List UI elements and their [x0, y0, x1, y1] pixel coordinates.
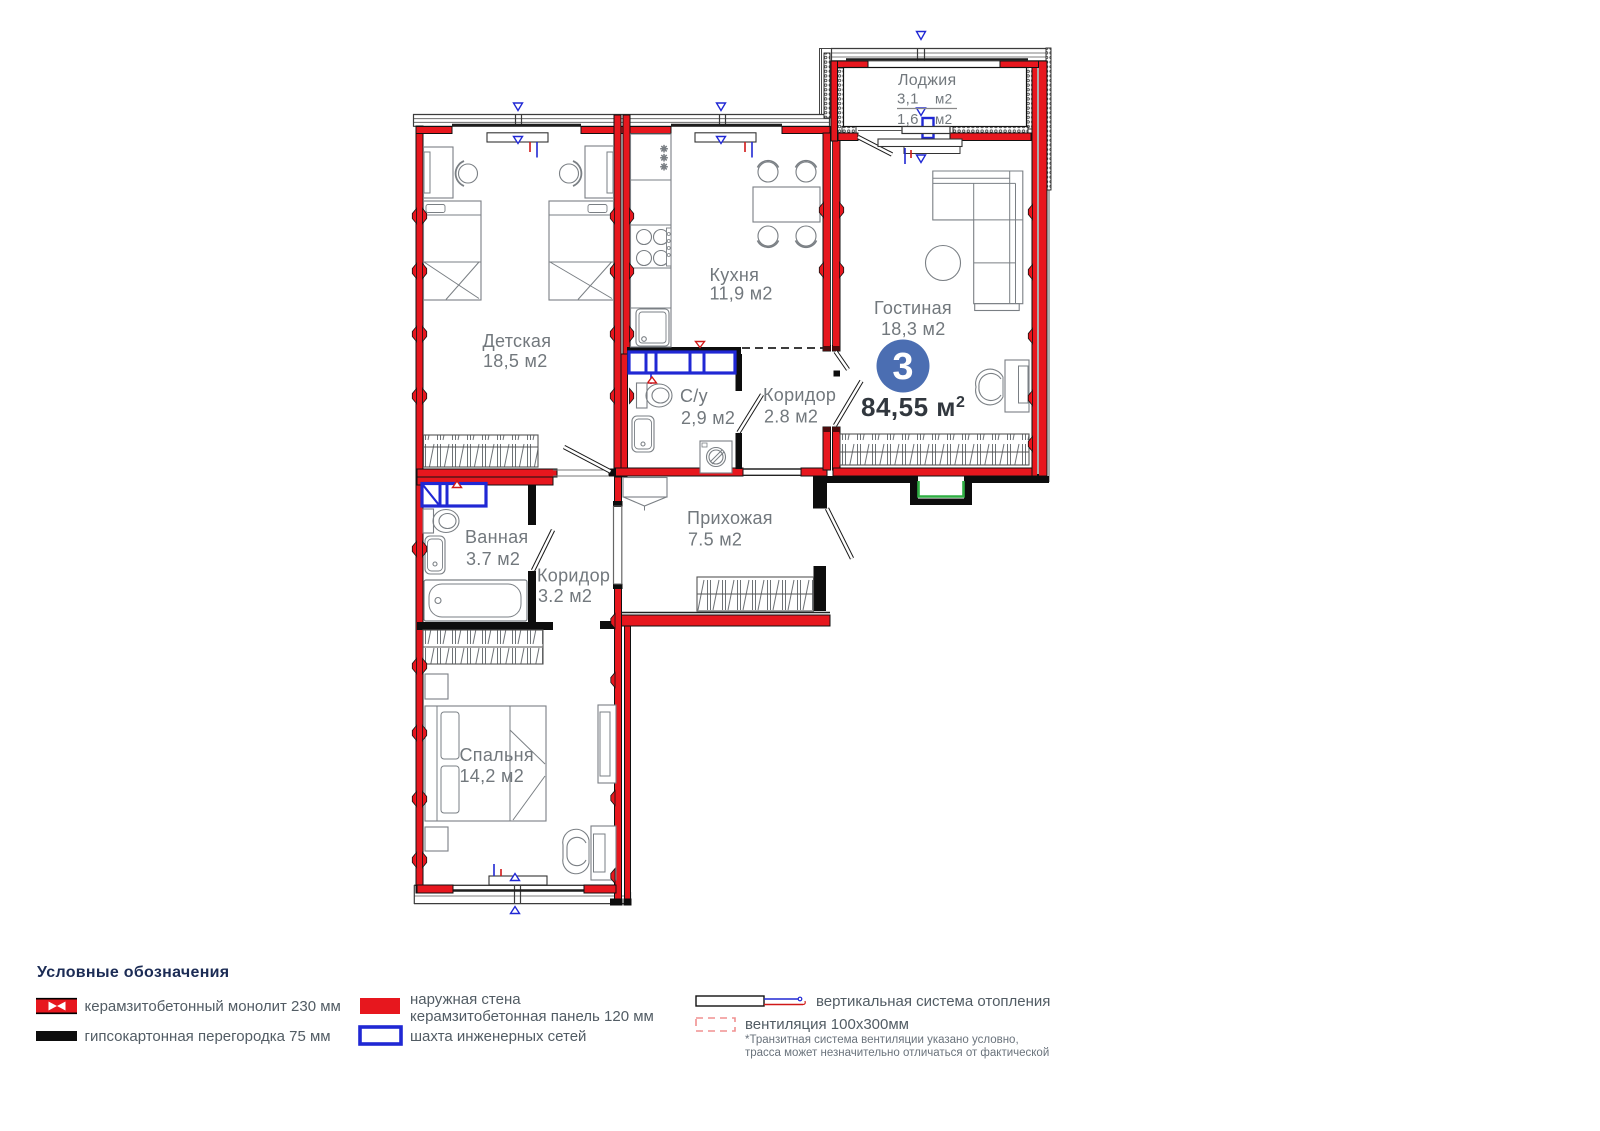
svg-text:11,9 м2: 11,9 м2	[710, 284, 773, 304]
svg-text:18,5 м2: 18,5 м2	[483, 351, 548, 371]
svg-text:Лоджия: Лоджия	[898, 72, 957, 89]
svg-text:84,55 м2: 84,55 м2	[861, 392, 965, 422]
svg-text:трасса может незначительно отл: трасса может незначительно отличаться от…	[745, 1047, 1049, 1059]
svg-text:вентиляция 100х300мм: вентиляция 100х300мм	[745, 1016, 909, 1033]
svg-text:гипсокартонная перегородка 75: гипсокартонная перегородка 75 мм	[85, 1028, 331, 1045]
svg-text:3.2 м2: 3.2 м2	[538, 586, 592, 606]
svg-text:С/у: С/у	[680, 386, 708, 406]
svg-text:Спальня: Спальня	[460, 745, 534, 765]
svg-text:3: 3	[892, 346, 913, 388]
svg-text:Кухня: Кухня	[710, 265, 760, 285]
svg-text:3.7 м2: 3.7 м2	[466, 549, 520, 569]
svg-text:✳: ✳	[660, 162, 668, 172]
svg-text:Коридор: Коридор	[763, 385, 836, 405]
svg-text:Прихожая: Прихожая	[687, 508, 773, 528]
svg-text:Условные обозначения: Условные обозначения	[37, 964, 229, 981]
svg-text:керамзитобетонная панель 120 м: керамзитобетонная панель 120 мм	[410, 1008, 654, 1025]
svg-text:м2: м2	[935, 112, 952, 127]
svg-text:шахта инженерных сетей: шахта инженерных сетей	[410, 1028, 586, 1045]
svg-text:18,3 м2: 18,3 м2	[881, 319, 946, 339]
svg-text:7.5 м2: 7.5 м2	[688, 530, 742, 550]
svg-text:керамзитобетонный монолит 230: керамзитобетонный монолит 230 мм	[85, 998, 341, 1015]
svg-text:м2: м2	[935, 92, 952, 107]
svg-text:Ванная: Ванная	[465, 527, 528, 547]
svg-text:2,9 м2: 2,9 м2	[681, 408, 735, 428]
svg-text:3,1: 3,1	[897, 91, 919, 108]
svg-text:1,6: 1,6	[897, 111, 919, 128]
svg-text:2.8 м2: 2.8 м2	[764, 407, 818, 427]
svg-text:наружная стена: наружная стена	[410, 991, 521, 1008]
svg-text:Детская: Детская	[483, 331, 552, 351]
svg-text:вертикальная система отопления: вертикальная система отопления	[816, 993, 1050, 1010]
svg-text:*Транзитная система вентиляции: *Транзитная система вентиляции указано у…	[745, 1034, 1019, 1046]
svg-text:14,2 м2: 14,2 м2	[460, 766, 525, 786]
svg-text:Гостиная: Гостиная	[874, 298, 952, 318]
svg-text:Коридор: Коридор	[537, 566, 610, 586]
